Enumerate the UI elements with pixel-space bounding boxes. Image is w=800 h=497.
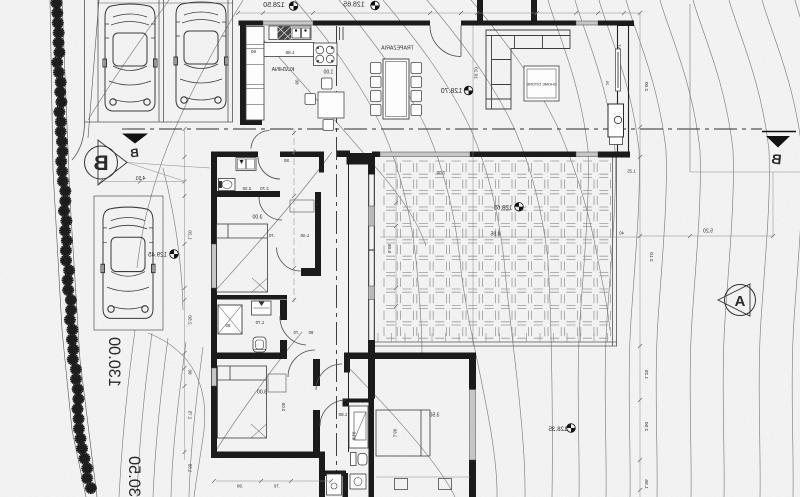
svg-text:128.70: 128.70 xyxy=(441,88,463,95)
svg-text:2.75: 2.75 xyxy=(188,410,193,419)
svg-text:.70: .70 xyxy=(273,484,280,489)
svg-text:.70: .70 xyxy=(293,330,299,335)
svg-text:1.00: 1.00 xyxy=(323,70,333,76)
svg-text:80: 80 xyxy=(188,369,193,374)
svg-text:1.25: 1.25 xyxy=(643,370,649,380)
svg-text:128.65: 128.65 xyxy=(343,2,365,9)
svg-text:5.20: 5.20 xyxy=(703,229,713,235)
svg-text:B: B xyxy=(771,151,783,168)
svg-text:130.50: 130.50 xyxy=(125,456,144,497)
svg-text:8.85: 8.85 xyxy=(490,232,500,238)
svg-text:1.80: 1.80 xyxy=(338,412,347,417)
svg-text:1.85: 1.85 xyxy=(285,50,294,55)
svg-text:20: 20 xyxy=(605,80,610,85)
svg-text:3.50: 3.50 xyxy=(429,413,439,419)
svg-text:129.45: 129.45 xyxy=(147,252,166,259)
svg-text:128.50: 128.50 xyxy=(263,2,285,9)
svg-text:VT: VT xyxy=(617,43,621,48)
svg-text:60: 60 xyxy=(295,79,300,84)
svg-text:A: A xyxy=(734,293,745,310)
svg-text:2.00: 2.00 xyxy=(643,82,649,92)
svg-text:.90: .90 xyxy=(236,484,243,489)
svg-text:7.00: 7.00 xyxy=(436,170,445,175)
svg-text:4.91: 4.91 xyxy=(135,176,145,182)
svg-text:2.50: 2.50 xyxy=(187,315,193,325)
svg-text:1.60: 1.60 xyxy=(393,428,398,437)
svg-text:1.70: 1.70 xyxy=(255,320,264,325)
svg-text:1.55: 1.55 xyxy=(188,463,193,472)
svg-text:1.20: 1.20 xyxy=(187,230,193,240)
svg-text:2.10: 2.10 xyxy=(648,252,654,262)
svg-text:10.10: 10.10 xyxy=(473,67,479,79)
svg-text:3.00: 3.00 xyxy=(252,215,262,221)
svg-text:90: 90 xyxy=(308,330,313,335)
svg-text:TRAPEZARIA: TRAPEZARIA xyxy=(381,46,414,52)
svg-text:1.40: 1.40 xyxy=(300,233,309,238)
svg-text:KUZHINA: KUZHINA xyxy=(271,67,294,73)
svg-text:128.35: 128.35 xyxy=(548,426,567,433)
svg-text:130.00: 130.00 xyxy=(105,337,124,387)
svg-text:.80: .80 xyxy=(283,158,289,163)
svg-text:3.00: 3.00 xyxy=(257,390,267,396)
svg-text:40: 40 xyxy=(619,231,624,236)
svg-text:2.70: 2.70 xyxy=(260,186,269,191)
svg-text:2.05: 2.05 xyxy=(281,402,286,411)
svg-text:1.55: 1.55 xyxy=(643,479,649,489)
svg-text:5.05: 5.05 xyxy=(386,244,392,254)
svg-text:B: B xyxy=(93,152,108,175)
svg-text:1.25: 1.25 xyxy=(627,169,636,174)
svg-text:90: 90 xyxy=(225,323,231,328)
svg-text:60: 60 xyxy=(251,49,257,54)
svg-text:3.10: 3.10 xyxy=(352,431,357,440)
svg-text:2.50: 2.50 xyxy=(643,422,649,432)
svg-text:DHOME DITORE: DHOME DITORE xyxy=(526,82,557,87)
svg-text:.70: .70 xyxy=(268,233,275,238)
svg-text:128.65: 128.65 xyxy=(493,205,512,212)
svg-text:2.30: 2.30 xyxy=(242,186,251,191)
